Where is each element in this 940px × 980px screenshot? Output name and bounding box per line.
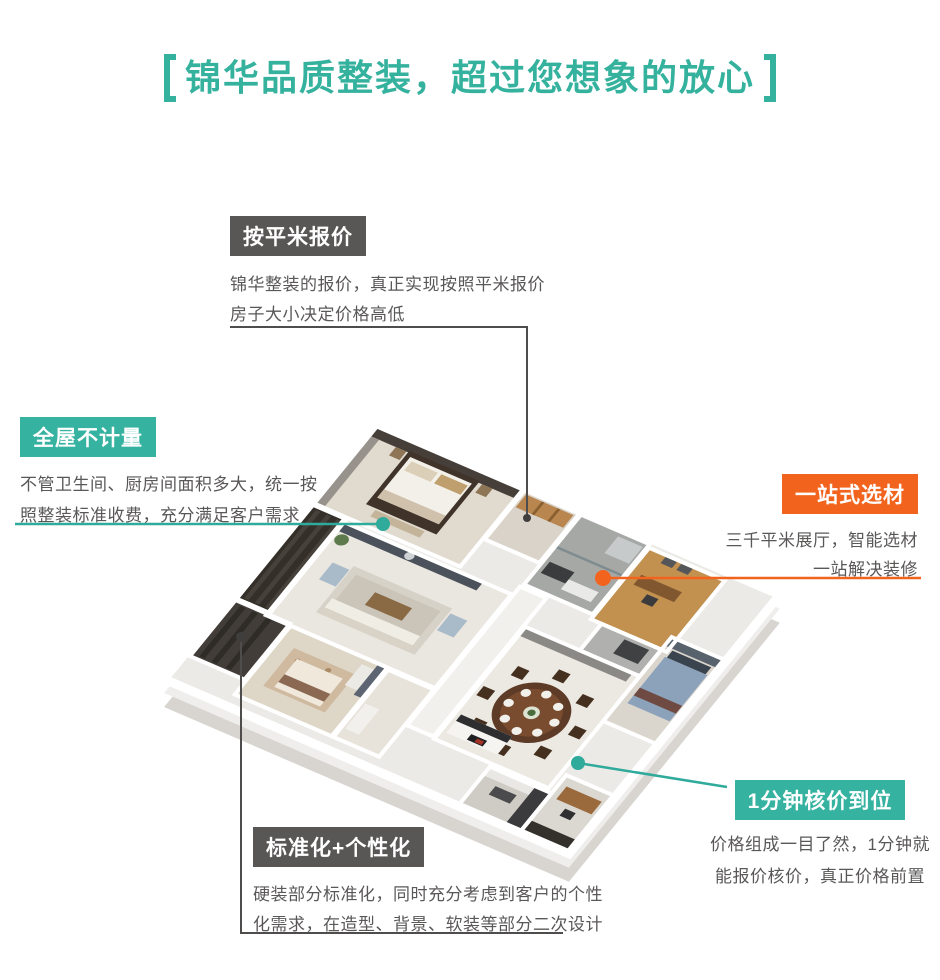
callout-whole-house: 全屋不计量 不管卫生间、厨房间面积多大，统一按 照整装标准收费，充分满足客户需求 [20, 417, 318, 531]
callout-one-minute-tag: 1分钟核价到位 [735, 780, 906, 820]
callout-standard-desc-line2: 化需求，在造型、背景、软装等部分二次设计 [253, 910, 603, 940]
callout-whole-house-desc-line1: 不管卫生间、厨房间面积多大，统一按 [20, 469, 318, 500]
callout-one-stop-tag: 一站式选材 [782, 474, 918, 514]
callout-standard-desc: 硬装部分标准化，同时充分考虑到客户的个性 化需求，在造型、背景、软装等部分二次设… [253, 880, 603, 940]
callout-whole-house-tag: 全屋不计量 [20, 417, 156, 457]
callout-one-minute-desc-line2: 能报价核价，真正价格前置 [700, 861, 940, 893]
callout-whole-house-desc-line2: 照整装标准收费，充分满足客户需求 [20, 500, 318, 531]
callout-one-minute-desc-line1: 价格组成一目了然，1分钟就 [700, 829, 940, 861]
callout-standard-tag: 标准化+个性化 [253, 827, 424, 867]
callout-standard: 标准化+个性化 硬装部分标准化，同时充分考虑到客户的个性 化需求，在造型、背景、… [253, 827, 603, 940]
callout-whole-house-desc: 不管卫生间、厨房间面积多大，统一按 照整装标准收费，充分满足客户需求 [20, 469, 318, 531]
callout-one-stop-desc-line1: 三千平米展厅，智能选材 [726, 526, 919, 555]
callout-one-stop-desc: 三千平米展厅，智能选材 一站解决装修 [726, 526, 919, 584]
page-title-text: 锦华品质整装，超过您想象的放心 [185, 52, 755, 104]
callout-one-minute-desc: 价格组成一目了然，1分钟就 能报价核价，真正价格前置 [700, 829, 940, 893]
callout-per-sqm-tag: 按平米报价 [230, 216, 366, 256]
callout-per-sqm-desc-line1: 锦华整装的报价，真正实现按照平米报价 [230, 270, 545, 300]
callout-per-sqm-desc-line2: 房子大小决定价格高低 [230, 300, 545, 330]
page-title: 锦华品质整装，超过您想象的放心 [0, 52, 940, 104]
bracket-left-icon [164, 54, 176, 102]
callout-one-minute: 1分钟核价到位 价格组成一目了然，1分钟就 能报价核价，真正价格前置 [700, 780, 940, 893]
callout-one-stop-desc-line2: 一站解决装修 [726, 555, 919, 584]
callout-per-sqm-desc: 锦华整装的报价，真正实现按照平米报价 房子大小决定价格高低 [230, 270, 545, 330]
bracket-right-icon [764, 54, 776, 102]
promo-page: 锦华品质整装，超过您想象的放心 按平米报价 锦华整装的报价，真正实现按照平米报价… [0, 0, 940, 980]
callout-per-sqm: 按平米报价 锦华整装的报价，真正实现按照平米报价 房子大小决定价格高低 [230, 216, 545, 330]
callout-standard-desc-line1: 硬装部分标准化，同时充分考虑到客户的个性 [253, 880, 603, 910]
callout-one-stop: 一站式选材 三千平米展厅，智能选材 一站解决装修 [726, 474, 919, 584]
